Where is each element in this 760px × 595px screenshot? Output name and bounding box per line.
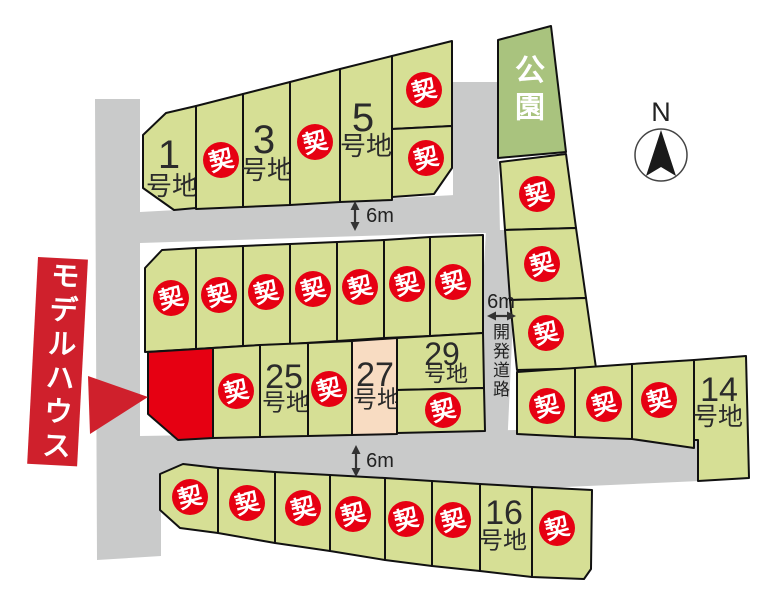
road-width-label: 6m [366,205,394,227]
lot-number-16: 16 [485,494,523,532]
site-plan-canvas: 1号地契3号地契5号地契契契契契契契契14号地契契契契契契契契25号地契27号地… [0,0,760,595]
model-house-lot [148,348,213,440]
road-width-label: 6m [366,450,394,472]
park-label: 公園 [511,54,541,128]
lot-number-suffix: 号地 [340,131,392,161]
lot-number-suffix: 号地 [424,362,468,387]
road-width-label: 6m [487,291,515,313]
model-house-label: モデルハウス [38,259,78,464]
lot-number-suffix: 号地 [353,387,401,414]
site-map: 1号地契3号地契5号地契契契契契契契契14号地契契契契契契契契25号地契27号地… [0,0,760,595]
north-label: N [651,97,671,127]
lot-number-suffix: 号地 [146,171,198,201]
lot-number-suffix: 号地 [693,403,743,431]
lot-number-suffix: 号地 [262,390,310,417]
road-surface [453,82,500,233]
lot-number-suffix: 号地 [241,155,293,185]
lot-number-suffix: 号地 [479,528,527,555]
development-road-label: 開発道路 [491,323,508,399]
